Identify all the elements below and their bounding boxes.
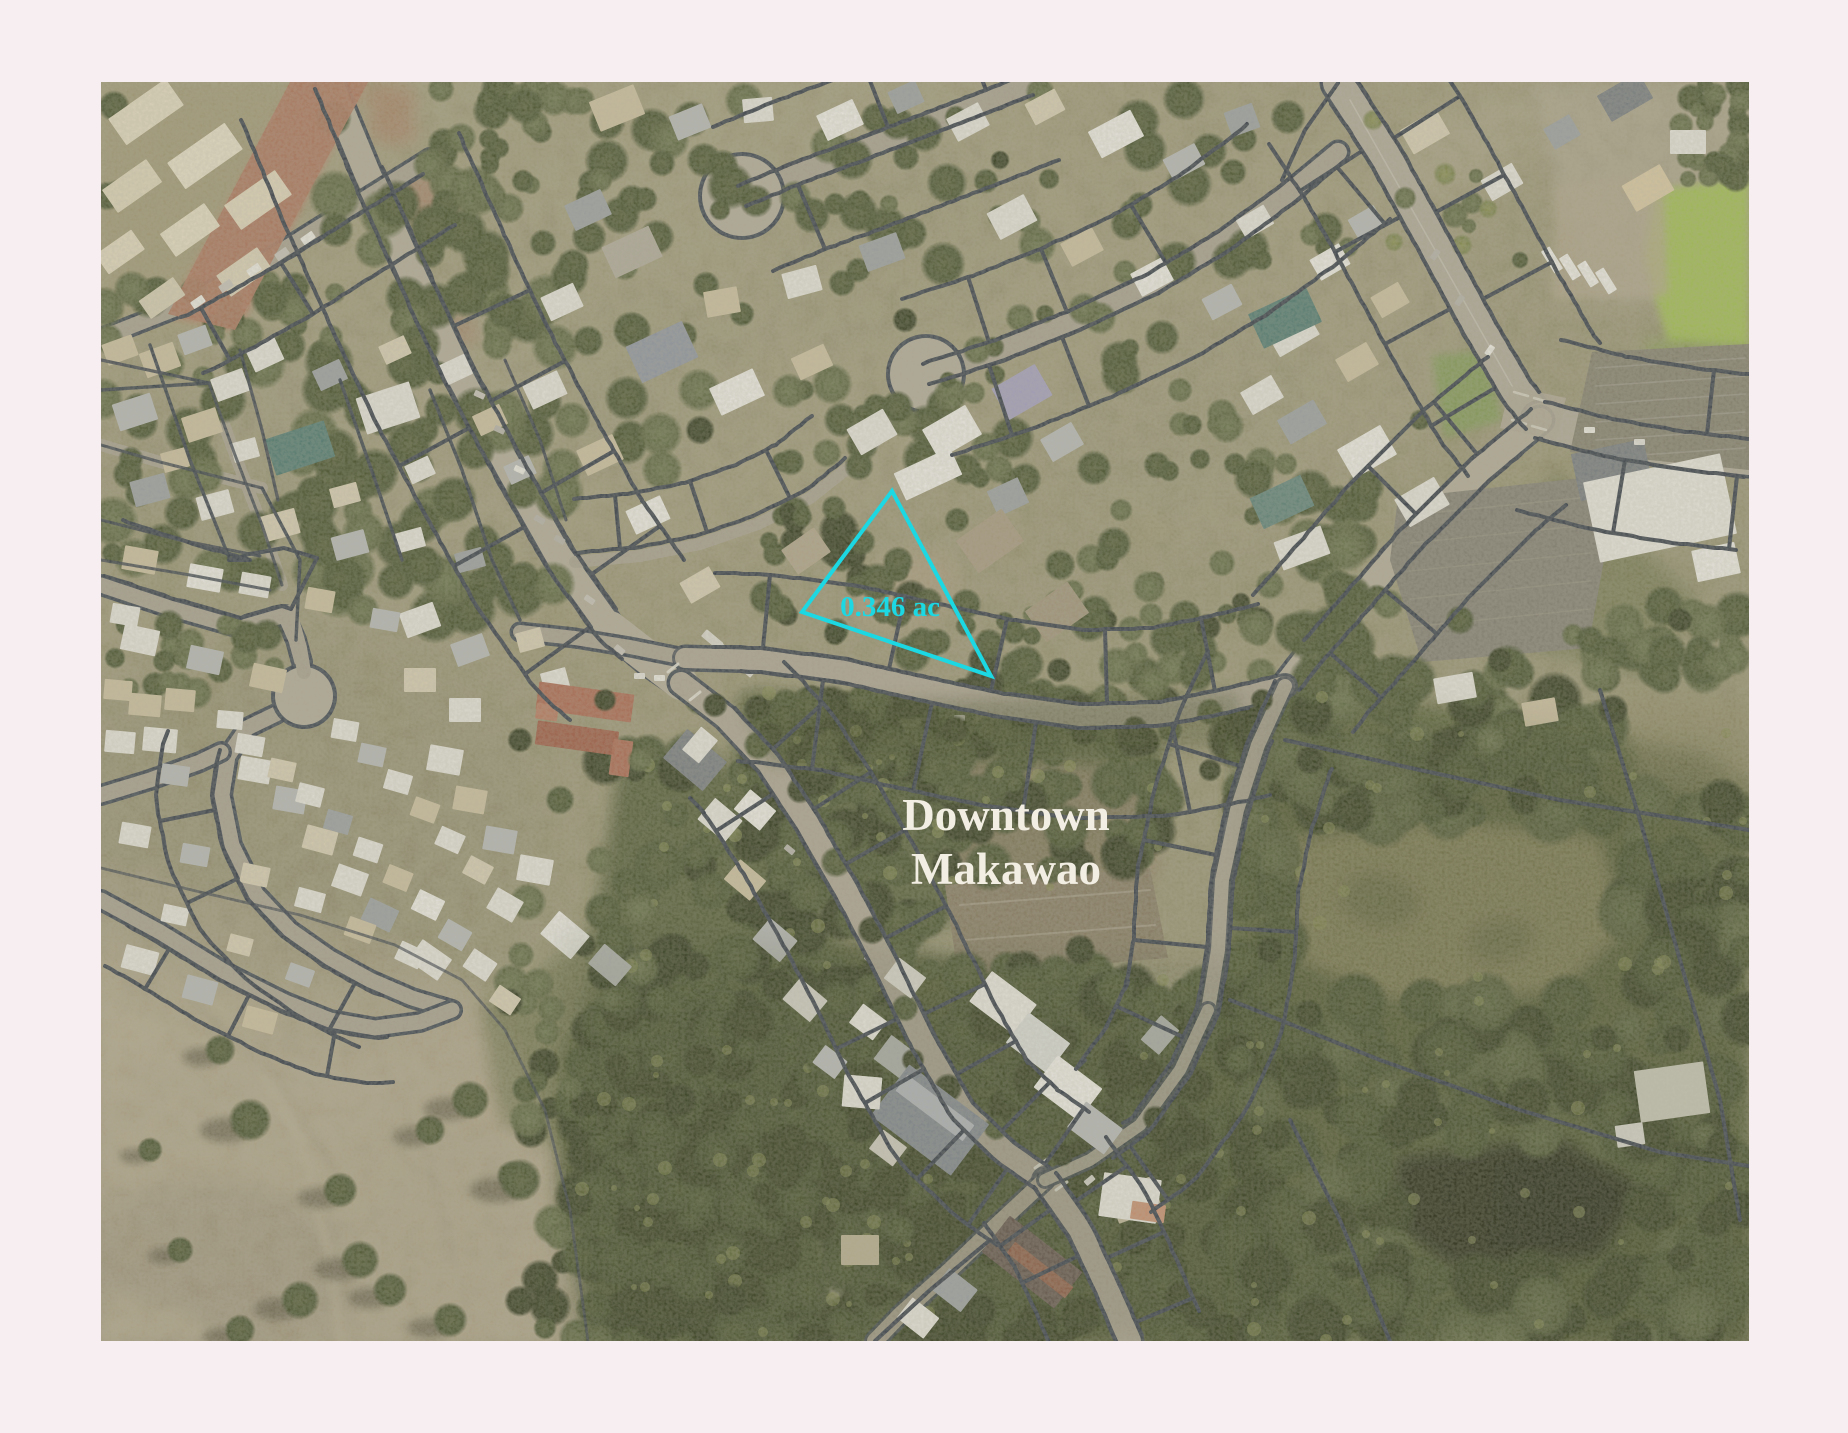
svg-text:Makawao: Makawao bbox=[911, 844, 1101, 894]
svg-text:0.346 ac: 0.346 ac bbox=[840, 591, 940, 623]
svg-text:Downtown: Downtown bbox=[902, 790, 1110, 840]
